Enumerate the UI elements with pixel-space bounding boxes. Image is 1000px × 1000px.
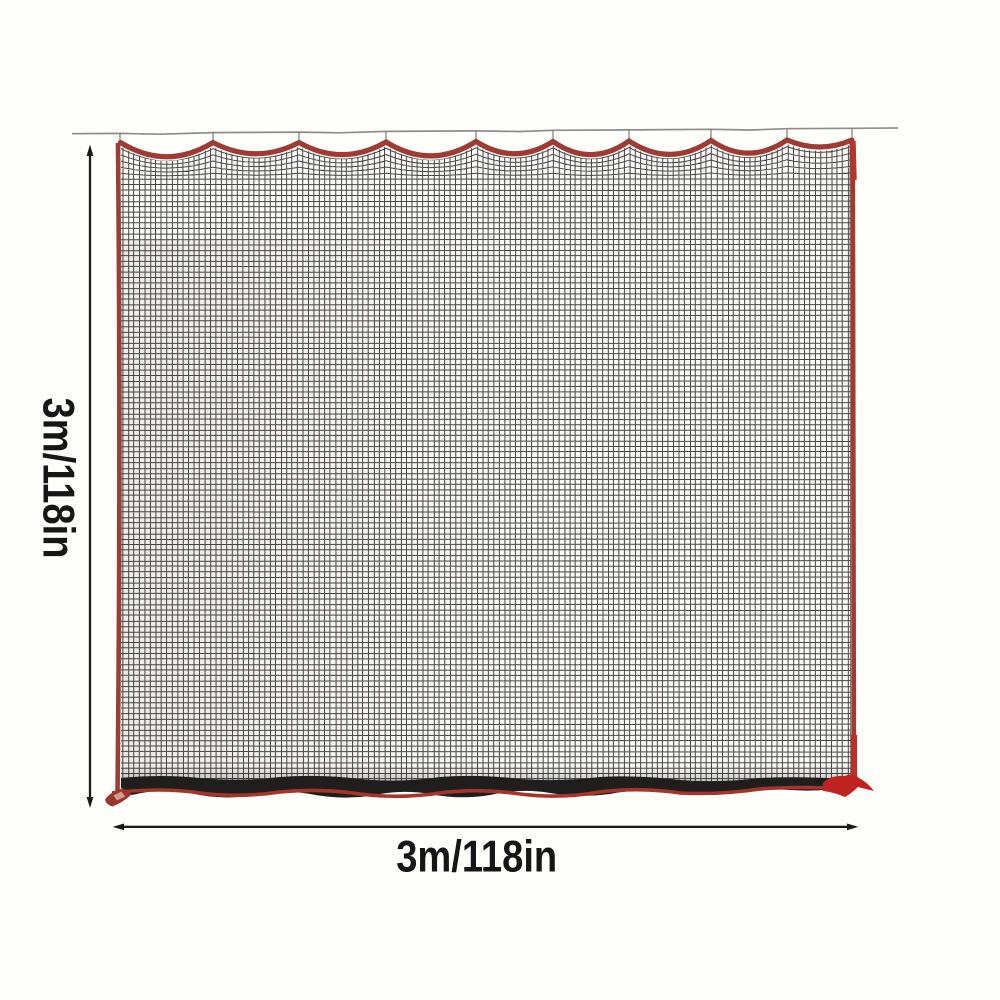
svg-text:3m/118in: 3m/118in bbox=[34, 398, 83, 559]
svg-text:3m/118in: 3m/118in bbox=[396, 832, 557, 881]
